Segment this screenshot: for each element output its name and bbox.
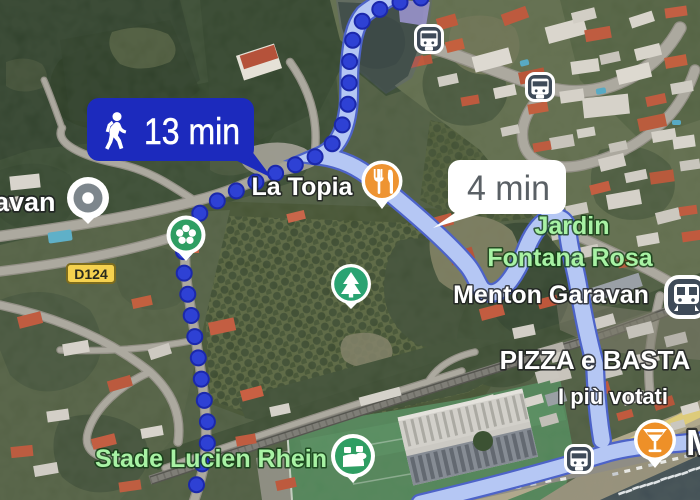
svg-text:D124: D124 — [74, 266, 108, 282]
svg-text:PIZZA e BASTA: PIZZA e BASTA — [500, 345, 691, 375]
svg-text:M: M — [686, 422, 700, 463]
svg-text:avan: avan — [0, 187, 56, 217]
svg-text:13 min: 13 min — [144, 111, 240, 152]
svg-text:Menton Garavan: Menton Garavan — [453, 281, 649, 309]
svg-text:La Topia: La Topia — [252, 173, 354, 201]
svg-text:Fontana Rosa: Fontana Rosa — [487, 244, 653, 272]
svg-text:I più votati: I più votati — [558, 384, 668, 409]
svg-text:4 min: 4 min — [467, 169, 550, 208]
svg-text:Jardin: Jardin — [534, 212, 609, 240]
svg-text:Stade Lucien Rhein: Stade Lucien Rhein — [95, 445, 327, 473]
